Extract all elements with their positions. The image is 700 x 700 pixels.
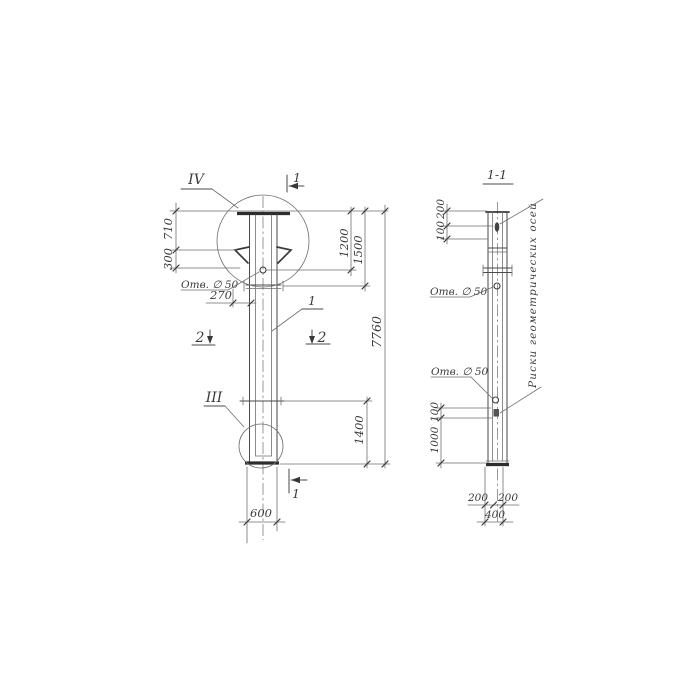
axes-note-text: Риски геометрических осей xyxy=(527,202,539,389)
detail-label-top-text: IV xyxy=(187,172,206,188)
section-hole-note-upper-text: Отв. ∅ 50 xyxy=(430,286,488,298)
section-mark-2-left-text: 2 xyxy=(195,330,205,346)
dim-200-top: 200 xyxy=(435,199,447,220)
section-mark-1-top-text: 1 xyxy=(293,170,301,185)
section-top-mark xyxy=(495,222,500,232)
part-label: 1 xyxy=(272,293,323,331)
section-view: 1-1 xyxy=(429,167,543,526)
part-label-text: 1 xyxy=(308,293,316,308)
dim-1000: 1000 xyxy=(429,426,441,453)
detail-label-bottom-text: III xyxy=(205,390,223,406)
bracket-right xyxy=(277,247,291,263)
front-view: 710 300 1200 1500 7760 1400 600 270 Отв.… xyxy=(161,170,390,543)
front-column-bottom xyxy=(245,456,279,463)
section-mark-2-right: 2 xyxy=(306,330,330,346)
dim-200-right: 200 xyxy=(497,492,518,504)
drawing-page: 710 300 1200 1500 7760 1400 600 270 Отв.… xyxy=(0,0,700,700)
section-hole-note-lower-text: Отв. ∅ 50 xyxy=(431,366,489,378)
section-hole-lower xyxy=(493,397,499,403)
section-axis-mark xyxy=(494,409,500,417)
section-title: 1-1 xyxy=(483,167,513,184)
dim-100-top: 100 xyxy=(435,221,447,241)
dim-1500: 1500 xyxy=(351,235,365,264)
bracket-left xyxy=(235,247,249,263)
dim-600: 600 xyxy=(250,506,272,520)
dim-1200: 1200 xyxy=(337,228,351,257)
section-hole-upper xyxy=(494,283,500,289)
detail-label-bottom: III xyxy=(204,390,244,427)
section-mark-1-bottom-text: 1 xyxy=(292,486,300,501)
axes-note: Риски геометрических осей xyxy=(500,199,543,413)
section-hole-note-upper: Отв. ∅ 50 xyxy=(430,286,493,298)
dim-100-bottom: 100 xyxy=(429,402,441,422)
dim-200-left: 200 xyxy=(467,492,488,504)
section-mark-2-left: 2 xyxy=(192,330,215,346)
detail-label-top: IV xyxy=(181,172,238,208)
dim-400: 400 xyxy=(484,509,505,521)
dim-300: 300 xyxy=(161,248,175,270)
section-mark-1-top: 1 xyxy=(287,170,304,192)
dim-7760: 7760 xyxy=(369,316,384,348)
dim-710: 710 xyxy=(161,218,175,240)
section-hole-note-lower: Отв. ∅ 50 xyxy=(431,366,492,398)
technical-drawing: 710 300 1200 1500 7760 1400 600 270 Отв.… xyxy=(0,0,700,700)
section-title-text: 1-1 xyxy=(487,167,507,182)
dim-1400: 1400 xyxy=(352,415,366,444)
section-mark-1-bottom: 1 xyxy=(289,469,307,501)
